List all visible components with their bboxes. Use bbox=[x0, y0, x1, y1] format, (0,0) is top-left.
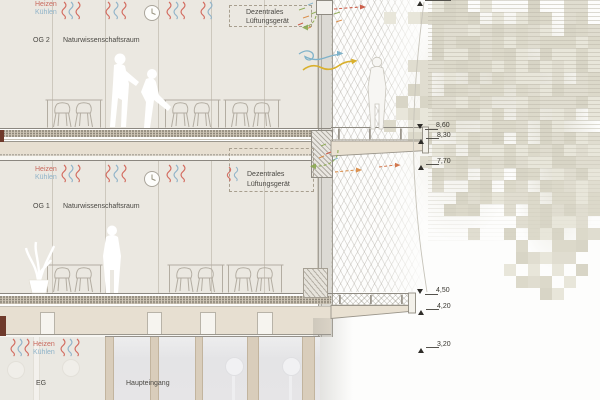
entrance-mullion bbox=[247, 337, 259, 400]
ceiling-beam bbox=[40, 312, 55, 336]
door-porthole bbox=[225, 357, 244, 376]
floor-label-og1: OG 1 bbox=[33, 203, 50, 211]
roof-vent-unit bbox=[316, 0, 333, 15]
ceiling-beam bbox=[147, 312, 162, 336]
entrance-mullion bbox=[195, 337, 203, 400]
vent-label-line1: Dezentrales bbox=[246, 9, 283, 17]
triangle-up-icon bbox=[418, 139, 424, 144]
slab-edge-cut bbox=[0, 316, 6, 336]
cooling-label-og1: Kühlen bbox=[35, 174, 57, 182]
ceiling-beam bbox=[200, 312, 216, 336]
entrance-mullion bbox=[105, 337, 114, 400]
vent-label-line2: Lüftungsgerät bbox=[246, 18, 289, 26]
decentral-vent-unit bbox=[311, 130, 333, 178]
entrance-mullion bbox=[150, 337, 159, 400]
vent-label-box-og1: Dezentrales Lüftungsgerät bbox=[229, 148, 314, 192]
entrance-mullion bbox=[302, 337, 315, 400]
cooling-label-og2: Kühlen bbox=[35, 9, 57, 17]
facade-parapet-hatch bbox=[303, 268, 328, 298]
section-drawing: Dezentrales Lüftungsgerät Dezentrales Lü… bbox=[0, 0, 600, 400]
door-porthole bbox=[282, 357, 301, 376]
triangle-up-icon bbox=[418, 165, 424, 170]
triangle-down-icon bbox=[417, 289, 423, 294]
floor-label-eg: EG bbox=[36, 380, 46, 388]
heating-label-og2: Heizen bbox=[35, 1, 57, 9]
vent-label-line1: Dezentrales bbox=[247, 171, 284, 179]
triangle-up-icon bbox=[418, 348, 424, 353]
triangle-up-icon bbox=[418, 310, 424, 315]
heating-label-eg: Heizen bbox=[33, 341, 55, 349]
vent-label-line2: Lüftungsgerät bbox=[247, 181, 290, 189]
canopy-deck-grating bbox=[331, 294, 409, 305]
floor-label-og2: OG 2 bbox=[33, 37, 50, 45]
interior-porthole bbox=[62, 359, 80, 377]
ceiling-beam bbox=[257, 312, 273, 336]
vent-label-box-og2: Dezentrales Lüftungsgerät bbox=[229, 5, 312, 27]
tree-pixel-texture bbox=[384, 0, 396, 12]
cooling-label-eg: Kühlen bbox=[33, 349, 55, 357]
room-label-og1: Naturwissenschaftsraum bbox=[63, 203, 140, 211]
canopy-fascia bbox=[409, 293, 416, 313]
triangle-up-icon bbox=[417, 1, 423, 6]
room-label-eg: Haupteingang bbox=[126, 380, 170, 388]
room-label-og2: Naturwissenschaftsraum bbox=[63, 37, 140, 45]
heating-label-og1: Heizen bbox=[35, 166, 57, 174]
slab-edge-cut bbox=[0, 130, 4, 142]
interior-porthole bbox=[7, 361, 25, 379]
tree-line-texture bbox=[428, 0, 600, 242]
triangle-down-icon bbox=[417, 124, 423, 129]
